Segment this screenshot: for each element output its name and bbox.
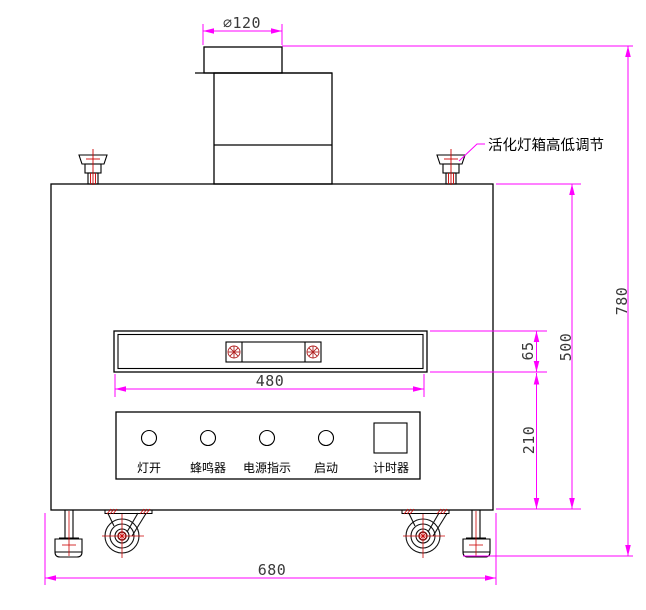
buzzer-label: 蜂鸣器 <box>190 460 226 475</box>
arrowhead-icon <box>534 374 540 385</box>
height-adjust-callout: 活化灯箱高低调节 <box>459 137 604 161</box>
dim-window-width-label: 480 <box>256 372 285 390</box>
dim-diameter-label: ∅120 <box>223 14 261 32</box>
start-label: 启动 <box>314 461 338 475</box>
dim-upper-height-label: 500 <box>557 333 575 362</box>
dim-upper-height: 500 <box>496 184 581 509</box>
arrowhead-icon <box>413 386 424 392</box>
callout-label: 活化灯箱高低调节 <box>488 137 604 154</box>
screw-symbol-left-icon <box>228 346 240 358</box>
arrowhead-icon <box>115 386 126 392</box>
right-adjustment-knob <box>437 149 465 185</box>
foot-centerlines <box>469 511 483 556</box>
timer-display-symbol <box>374 423 407 453</box>
arrowhead-icon <box>485 575 496 581</box>
power-indicator-symbol <box>260 431 275 446</box>
start-button-symbol <box>319 431 334 446</box>
chimney-body <box>214 73 332 184</box>
dim-lower-height: 210 <box>520 373 539 509</box>
viewing-window-outer <box>114 331 427 372</box>
arrowhead-icon <box>203 28 214 34</box>
foot-pad <box>55 539 82 557</box>
arrowhead-icon <box>534 498 540 509</box>
right-caster <box>402 509 449 558</box>
arrowhead-icon <box>625 545 631 556</box>
dim-overall-width-label: 680 <box>258 561 287 579</box>
arrowhead-icon <box>271 28 282 34</box>
leader-line <box>459 144 485 161</box>
timer-label: 计时器 <box>373 461 409 475</box>
dim-window-width: 480 <box>115 372 424 397</box>
dim-window-height: 65 <box>430 331 547 372</box>
lamp-on-button-symbol <box>142 431 157 446</box>
chimney-cap <box>204 47 282 73</box>
caster-centerlines <box>102 514 144 558</box>
arrowhead-icon <box>45 575 56 581</box>
arrowhead-icon <box>534 331 540 342</box>
dim-lower-height-label: 210 <box>520 426 538 455</box>
foot-centerlines <box>62 511 76 556</box>
screw-symbol-right-icon <box>307 346 319 358</box>
arrowhead-icon <box>625 46 631 57</box>
dim-window-height-label: 65 <box>519 341 537 360</box>
right-leveling-foot <box>463 510 490 557</box>
machine-front-view-drawing: ∅120 780 500 65 <box>0 0 646 610</box>
dim-diameter: ∅120 <box>203 14 282 45</box>
buzzer-button-symbol <box>201 431 216 446</box>
lamp-on-label: 灯开 <box>137 461 161 475</box>
cad-drawing-canvas: ∅120 780 500 65 <box>0 0 646 610</box>
left-caster <box>102 509 152 558</box>
machine-outline <box>51 47 493 510</box>
power-indicator-label: 电源指示 <box>243 460 291 475</box>
left-adjustment-knob <box>79 149 107 185</box>
left-leveling-foot <box>55 510 82 557</box>
panel-labels: 灯开 蜂鸣器 电源指示 启动 计时器 <box>137 460 409 475</box>
arrowhead-icon <box>569 498 575 509</box>
arrowhead-icon <box>534 361 540 372</box>
arrowhead-icon <box>569 184 575 195</box>
caster-centerlines <box>403 514 445 558</box>
foot-pad <box>463 539 490 557</box>
dim-overall-height-label: 780 <box>613 287 631 316</box>
viewing-window-inner <box>118 335 423 369</box>
